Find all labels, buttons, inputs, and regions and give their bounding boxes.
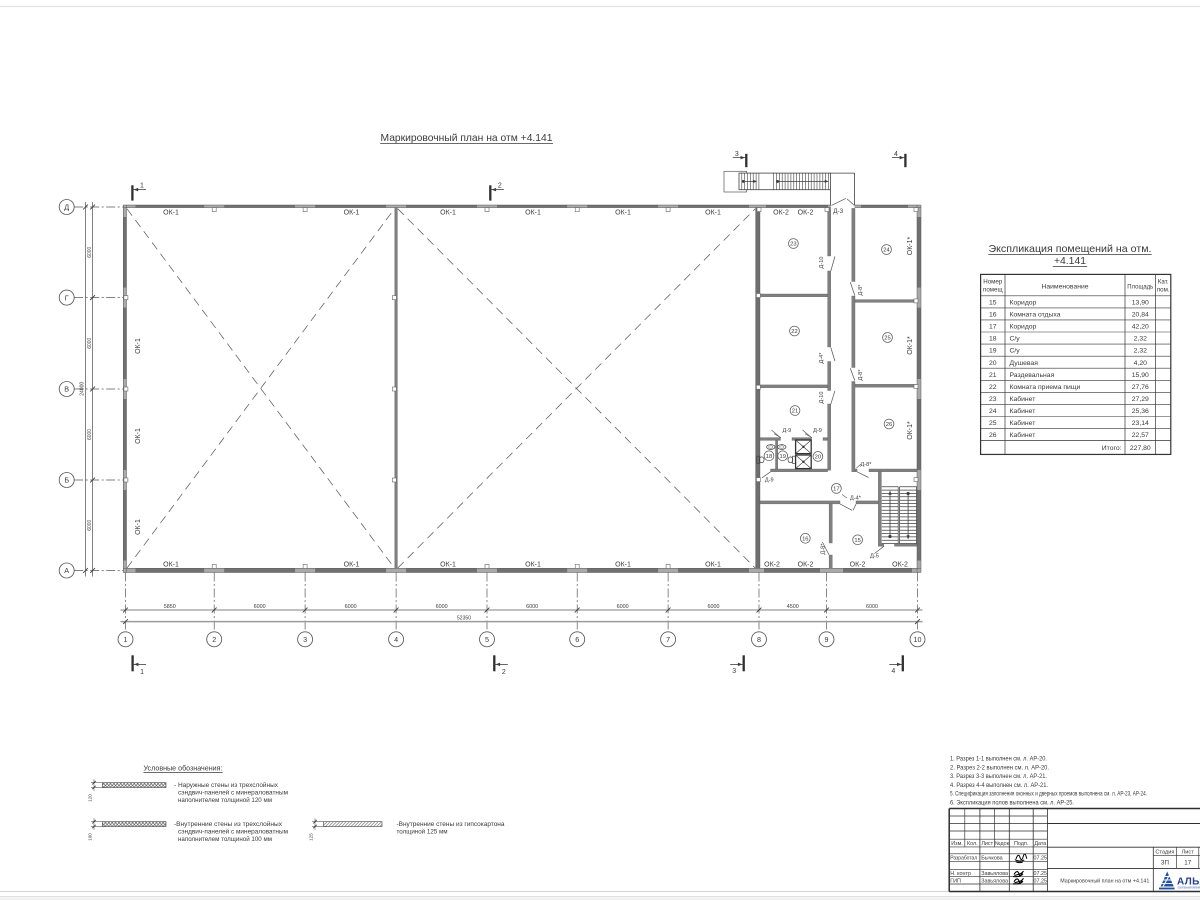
svg-text:С/у: С/у [1010,336,1021,343]
svg-text:2: 2 [498,183,502,190]
svg-text:Д-4*: Д-4* [850,495,862,501]
svg-text:ОК-1: ОК-1 [705,561,721,568]
svg-text:Коридор: Коридор [1010,299,1037,306]
svg-text:+4.141: +4.141 [1054,256,1086,267]
svg-text:Душевая: Душевая [1010,360,1039,367]
svg-text:125: 125 [308,833,313,841]
svg-text:Комната приема пищи: Комната приема пищи [1010,384,1081,391]
svg-text:3: 3 [735,151,739,158]
svg-text:ОК-1: ОК-1 [344,210,360,217]
svg-text:2: 2 [502,669,506,676]
svg-text:Подп.: Подп. [1014,841,1028,847]
svg-text:22: 22 [989,384,997,391]
svg-text:строительная компания: строительная компания [1178,886,1200,890]
svg-text:52350: 52350 [457,616,471,622]
svg-text:Д-4*: Д-4* [819,352,825,364]
svg-text:Маркировочный план на отм +4.1: Маркировочный план на отм +4.141 [381,133,553,144]
svg-text:6000: 6000 [87,519,93,530]
svg-text:100: 100 [87,833,92,841]
svg-text:Н. контр: Н. контр [950,871,971,877]
svg-text:3. Разрез 3-3 выполнен см. л.: 3. Разрез 3-3 выполнен см. л. АР-21. [950,773,1047,780]
svg-text:Условные обозначения:: Условные обозначения: [144,764,223,772]
svg-text:Итого:: Итого: [1102,445,1122,452]
svg-text:4: 4 [891,668,895,675]
svg-text:25: 25 [884,336,890,342]
svg-text:15,90: 15,90 [1132,372,1149,379]
svg-text:Экспликация помещений на отм.: Экспликация помещений на отм. [989,244,1152,255]
svg-text:6000: 6000 [866,604,878,610]
svg-text:Д-8*: Д-8* [858,369,864,381]
svg-text:Разработал: Разработал [950,856,977,862]
svg-text:1: 1 [124,635,128,644]
svg-text:- Наружные стены из трехслойны: - Наружные стены из трехслойных [174,782,279,789]
svg-text:15: 15 [989,299,997,306]
svg-text:Коридор: Коридор [1010,324,1037,331]
svg-text:Бычкова: Бычкова [981,856,1002,862]
svg-text:25,36: 25,36 [1132,408,1149,415]
svg-text:2,32: 2,32 [1134,348,1147,355]
svg-text:ОК-2: ОК-2 [764,561,780,568]
svg-text:ОК-1: ОК-1 [525,210,541,217]
svg-text:19: 19 [989,348,997,355]
svg-text:Д-9: Д-9 [813,428,822,434]
svg-text:6000: 6000 [526,604,538,610]
svg-text:ОК-1: ОК-1 [135,519,142,535]
svg-text:3: 3 [303,635,307,644]
svg-text:24000: 24000 [79,382,85,396]
svg-text:20: 20 [815,455,821,461]
svg-text:ОК-1: ОК-1 [615,561,631,568]
svg-text:19: 19 [779,454,785,460]
svg-text:Кат.: Кат. [1158,279,1169,286]
svg-text:ОК-1: ОК-1 [705,210,721,217]
svg-text:Д-9: Д-9 [765,478,774,484]
svg-text:16: 16 [989,312,997,319]
svg-text:ОК-1: ОК-1 [135,338,142,354]
svg-text:4500: 4500 [787,604,799,610]
svg-text:2. Разрез 2-2 выполнен см. л.: 2. Разрез 2-2 выполнен см. л. АР-20. [950,764,1049,771]
svg-text:Д-8*: Д-8* [861,462,873,468]
svg-text:ОК-1: ОК-1 [525,561,541,568]
svg-text:ОК-1: ОК-1 [440,561,456,568]
svg-text:Кол.: Кол. [967,841,978,847]
svg-text:Кабинет: Кабинет [1010,407,1036,415]
svg-text:4,20: 4,20 [1134,360,1147,367]
svg-text:24: 24 [883,248,890,254]
svg-text:23: 23 [989,396,997,403]
svg-text:Номер: Номер [983,279,1003,286]
svg-text:Наименование: Наименование [1041,284,1088,291]
svg-text:ОК-2: ОК-2 [798,210,814,217]
svg-text:6000: 6000 [254,604,266,610]
svg-text:ОК-1*: ОК-1* [907,236,914,255]
svg-text:Д-10: Д-10 [819,257,825,269]
svg-text:Маркировочный план на отм +4.1: Маркировочный план на отм +4.141 [1060,878,1149,885]
svg-text:Кабинет: Кабинет [1010,395,1036,403]
svg-text:18: 18 [989,336,997,343]
svg-text:Площадь: Площадь [1127,284,1153,291]
svg-text:21: 21 [989,372,997,379]
svg-text:20: 20 [989,360,997,367]
svg-text:Д-5: Д-5 [870,554,879,560]
svg-text:26: 26 [886,422,892,428]
svg-text:07.25: 07.25 [1034,856,1048,862]
svg-text:ЗП: ЗП [1161,860,1169,867]
svg-text:Д-8*: Д-8* [821,543,827,555]
svg-text:Кабинет: Кабинет [1010,431,1036,439]
svg-text:ОК-1*: ОК-1* [907,421,914,440]
svg-text:-Внутренние стены из трехслойн: -Внутренние стены из трехслойных [174,821,283,828]
svg-text:13,90: 13,90 [1132,299,1149,306]
svg-text:22,57: 22,57 [1132,432,1149,439]
svg-text:42,20: 42,20 [1132,324,1149,331]
svg-text:23: 23 [790,242,796,248]
svg-text:6000: 6000 [87,247,93,258]
svg-text:Завьялова: Завьялова [981,878,1008,884]
svg-text:1. Разрез 1-1 выполнен см. л.: 1. Разрез 1-1 выполнен см. л. АР-20. [950,756,1047,763]
svg-text:пом.: пом. [1157,287,1170,294]
svg-text:Изм.: Изм. [951,841,963,847]
svg-text:26: 26 [989,432,997,439]
svg-text:10: 10 [914,635,922,644]
svg-text:помещ: помещ [983,287,1003,294]
svg-text:24: 24 [989,408,997,415]
svg-text:Завьялова: Завьялова [981,871,1008,877]
svg-text:ОК-1*: ОК-1* [907,336,914,355]
svg-text:№док: №док [995,841,1010,847]
svg-text:5. Спецификация заполнения око: 5. Спецификация заполнения оконных и две… [950,791,1147,798]
svg-text:Комната отдыха: Комната отдыха [1010,312,1061,319]
svg-text:07.25: 07.25 [1034,878,1048,884]
svg-text:25: 25 [989,420,997,427]
svg-text:17: 17 [1184,860,1191,867]
svg-text:Д-8*: Д-8* [858,284,864,296]
svg-text:6000: 6000 [87,338,93,349]
svg-text:ОК-1: ОК-1 [344,561,360,568]
svg-text:ГИП: ГИП [950,878,961,884]
svg-text:17: 17 [833,487,839,493]
svg-text:6000: 6000 [345,604,357,610]
svg-text:22: 22 [791,329,797,335]
svg-text:ОК-2: ОК-2 [850,561,866,568]
svg-text:16: 16 [802,537,808,543]
svg-text:2,32: 2,32 [1134,336,1147,343]
svg-text:6000: 6000 [708,604,720,610]
svg-text:ОК-1: ОК-1 [135,428,142,444]
svg-text:15: 15 [854,538,860,544]
svg-text:2: 2 [212,635,216,644]
svg-text:4: 4 [394,635,398,644]
svg-text:Стадия: Стадия [1155,849,1174,855]
svg-text:Д: Д [64,203,69,212]
svg-text:1: 1 [140,669,144,676]
svg-text:Д-10: Д-10 [819,392,825,404]
svg-text:27,76: 27,76 [1132,384,1149,391]
svg-text:227,80: 227,80 [1130,445,1151,452]
svg-text:6000: 6000 [617,604,629,610]
svg-text:6: 6 [575,635,579,644]
svg-text:8: 8 [757,635,761,644]
svg-text:6000: 6000 [87,429,93,440]
svg-text:сэндвич-панелей с минераловатн: сэндвич-панелей с минераловатным [178,789,288,796]
svg-text:4. Разрез 4-4 выполнен см. л.: 4. Разрез 4-4 выполнен см. л. АР-21. [950,782,1048,789]
svg-text:сэндвич-панелей с минераловатн: сэндвич-панелей с минераловатным [178,828,288,835]
svg-text:А: А [64,566,69,575]
svg-text:17: 17 [989,324,997,331]
svg-text:-Внутренние стены из гипсокарт: -Внутренние стены из гипсокартона [397,821,506,828]
svg-text:7: 7 [666,635,670,644]
svg-text:ОК-2: ОК-2 [892,561,908,568]
svg-text:Лист: Лист [981,841,993,847]
svg-text:6000: 6000 [436,604,448,610]
svg-text:9: 9 [825,635,829,644]
svg-text:В: В [64,385,69,394]
svg-text:Д-3: Д-3 [833,208,843,215]
svg-text:Б: Б [64,476,69,485]
svg-text:С/у: С/у [1010,348,1021,355]
svg-text:толщиной 125 мм: толщиной 125 мм [397,828,448,835]
svg-text:ОК-1: ОК-1 [615,210,631,217]
svg-text:ОК-1: ОК-1 [163,561,179,568]
svg-text:наполнителем толщиной 120 мм: наполнителем толщиной 120 мм [178,797,272,804]
svg-text:23,14: 23,14 [1132,420,1149,427]
svg-text:18: 18 [766,454,772,460]
svg-text:6. Экспликация полов выполнена: 6. Экспликация полов выполнена см. л. АР… [950,800,1074,807]
svg-text:20,84: 20,84 [1132,312,1149,319]
svg-text:наполнителем толщиной 100 мм: наполнителем толщиной 100 мм [178,836,272,843]
svg-text:1: 1 [140,183,144,190]
svg-text:120: 120 [87,794,92,802]
svg-text:ОК-2: ОК-2 [798,561,814,568]
svg-text:ОК-1: ОК-1 [440,210,456,217]
svg-text:4: 4 [894,151,898,158]
svg-text:27,29: 27,29 [1132,396,1149,403]
svg-text:21: 21 [792,409,798,415]
svg-text:Г: Г [65,293,69,302]
svg-text:Лист: Лист [1182,849,1195,855]
svg-text:Раздевальная: Раздевальная [1010,372,1055,379]
svg-text:ОК-1: ОК-1 [163,210,179,217]
svg-text:ОК-2: ОК-2 [773,210,789,217]
svg-text:Д-9: Д-9 [783,428,792,434]
svg-text:07.25: 07.25 [1034,871,1048,877]
svg-text:3: 3 [732,668,736,675]
svg-text:5: 5 [485,635,489,644]
svg-text:Кабинет: Кабинет [1010,419,1036,427]
svg-text:5850: 5850 [164,604,176,610]
svg-text:Дата: Дата [1034,841,1046,847]
